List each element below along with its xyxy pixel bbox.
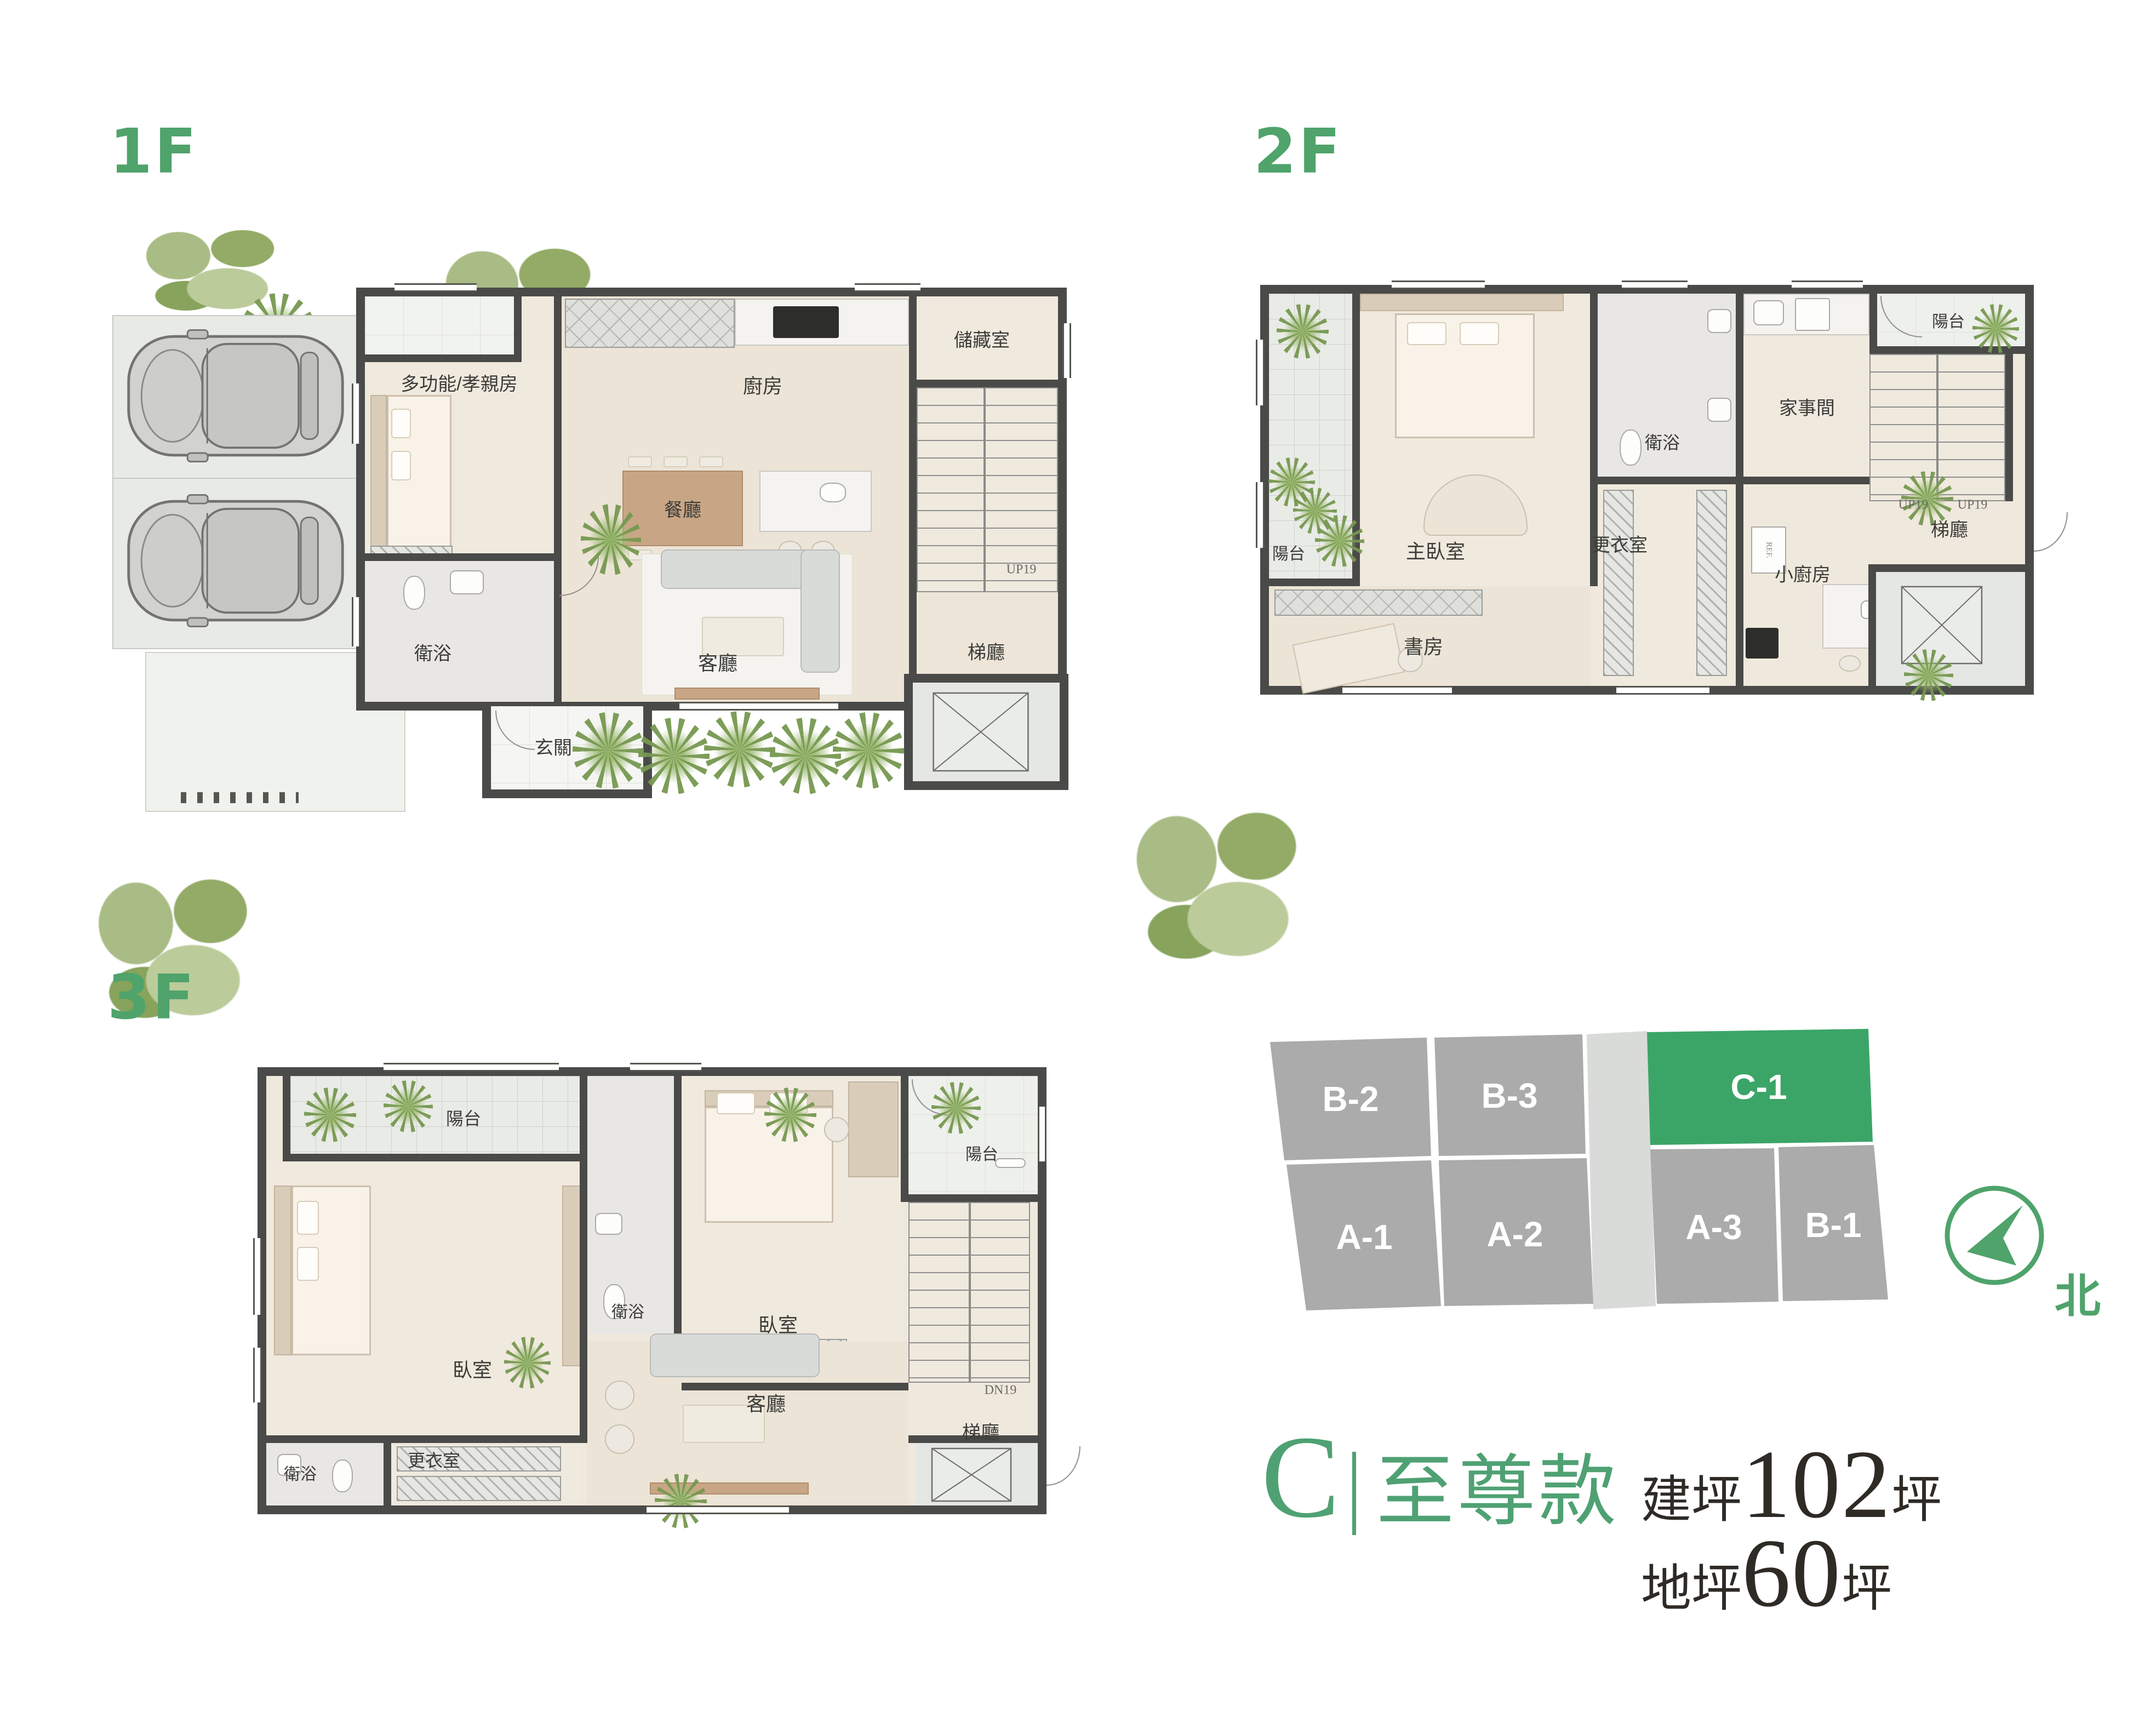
window [1622,280,1688,289]
toilet [1620,430,1642,466]
north-indicator: 北 [1940,1178,2104,1337]
land-area-value: 60 [1742,1524,1842,1622]
palm-icon [1972,304,2019,353]
room-label: 衛浴 [414,639,451,666]
window [1256,340,1265,405]
bed-headboard [1360,294,1564,311]
room-label: 書房 [1404,631,1443,660]
room-label: 衛浴 [611,1298,644,1322]
car-icon [123,491,348,631]
building-area-label: 建坪 [1641,1459,1742,1532]
garage-bay [113,479,361,648]
door-arc [2034,512,2068,552]
land-area-unit: 坪 [1842,1548,1892,1621]
floor-2f-label: 2F [1254,116,1342,187]
stairs-direction-label: UP19 [1898,498,1929,513]
room-label: 臥室 [453,1354,492,1383]
north-arrow-icon [1967,1205,2023,1266]
room-label: 主臥室 [1406,536,1465,564]
wall [580,1076,587,1435]
stairs-direction-label: DN19 [985,1383,1017,1398]
sink [1707,309,1731,333]
model-letter: C [1261,1418,1340,1536]
stair-divider [969,1202,971,1383]
fern-icon [1315,515,1364,567]
room-label: 陽台 [1272,540,1305,564]
window [352,597,361,646]
chair [664,456,688,467]
window [1342,686,1452,695]
building-area-unit: 坪 [1891,1459,1942,1532]
window [352,383,361,444]
bookshelf [1274,589,1483,616]
pillow [297,1247,319,1281]
lounge-chair [605,1381,634,1410]
sink [595,1213,622,1235]
window [1792,280,1863,289]
terrace-1f [365,296,514,354]
model-name: 至尊款 [1376,1453,1620,1531]
fern-icon [581,504,641,575]
wall [266,1435,587,1443]
floor-3f-label: 3F [107,962,196,1033]
elevator-wing-1f [904,674,1068,790]
room-label: 臥室 [758,1309,798,1338]
wall [1060,674,1068,790]
window [1392,280,1485,289]
room-label: 餐廳 [664,495,701,522]
site-unit-label: A-1 [1336,1217,1392,1257]
room-label: 儲藏室 [954,325,1010,352]
wall [904,674,1068,683]
wall [1736,294,1743,477]
site-road [1587,1031,1656,1309]
wall [365,553,562,561]
fern-icon [504,1337,551,1389]
fern-icon [1904,649,1953,701]
wall [1868,564,1876,686]
pillow [717,1092,755,1114]
room-label: 更衣室 [1592,530,1648,557]
chair [699,456,723,467]
lounge-chair [605,1424,634,1454]
bed-headboard [370,395,387,548]
site-unit-label: C-1 [1730,1067,1787,1107]
door-arc [1046,1446,1080,1486]
window [855,283,920,292]
room-label: 家事間 [1779,393,1835,420]
walkway-dashes [181,792,299,803]
site-unit-label: B-2 [1322,1079,1379,1119]
wall [682,1383,908,1390]
site-unit-label: B-1 [1805,1205,1861,1245]
room-label: 陽台 [1932,308,1965,332]
garage-bay [113,316,361,479]
window [1256,482,1265,548]
fridge-label: REF. [1764,542,1774,558]
tree-icon [1101,778,1337,992]
fern-icon [770,718,841,794]
room-label: 梯廳 [1931,515,1968,542]
room-label: 陽台 [965,1141,998,1165]
site-unit-label: A-2 [1486,1215,1543,1254]
stove [1746,628,1778,659]
elevator-shaft-icon [930,1447,1013,1502]
room-label: 廚房 [743,370,782,399]
window [1038,1107,1046,1161]
window [1616,686,1709,695]
land-area-label: 地坪 [1641,1548,1742,1621]
window [647,1505,789,1514]
fern-icon [655,1474,707,1528]
room-label: 衛浴 [1645,429,1680,454]
room-label: 玄關 [535,733,572,760]
stairs-direction-label: UP19 [1006,563,1037,577]
wall [2005,354,2013,501]
sofa [650,1333,820,1377]
wall [917,380,1058,387]
fern-icon [638,718,710,794]
land-area-line: 地坪 60 坪 [1641,1524,1892,1622]
wall [908,1194,1038,1202]
wall [901,1076,908,1202]
site-unit-label: A-3 [1685,1207,1742,1247]
palm-icon [931,1082,981,1134]
stairs-1f [917,387,1058,592]
wall [1868,564,2025,572]
kitchen-cabinets [565,299,735,348]
room-label: 客廳 [746,1388,786,1417]
fern-icon [304,1087,356,1142]
wall [1743,477,1869,484]
elevator-shaft-icon [931,691,1030,772]
wall [1869,294,1877,354]
garage-pad [112,315,362,649]
fern-icon [573,712,644,789]
wall [283,1076,290,1161]
pillow [1460,322,1499,345]
wardrobe [1603,490,1634,676]
site-unit-label: B-3 [1481,1076,1537,1115]
stairs-direction-label: UP19 [1958,498,1988,513]
wall [904,781,1068,790]
desk [848,1081,899,1177]
wall [482,789,652,798]
palm-icon [384,1080,433,1132]
bed-headboard [274,1186,291,1355]
fern-icon [1277,304,1329,359]
fern-icon [833,712,904,789]
wall [365,354,522,362]
room-label: 更衣室 [408,1447,460,1472]
window [679,702,838,711]
utility-sink [1753,300,1784,325]
car-icon [123,326,348,466]
sink [1707,398,1731,422]
bath-top-3f [587,1076,674,1333]
room-label: 陽台 [446,1105,481,1130]
bench [995,1158,1026,1168]
pillow [1407,322,1446,345]
floorplan-3f [258,1067,1046,1514]
room-label: 客廳 [698,648,737,676]
island-sink [820,483,846,502]
wall [384,1443,391,1505]
wall [1269,579,1360,586]
window [1062,323,1071,378]
chair [628,456,652,467]
toilet [332,1459,353,1492]
chair [824,1117,849,1142]
pillow [391,451,411,480]
room-label: 梯廳 [962,1418,999,1445]
room-label: 梯廳 [968,638,1005,665]
tv-console [674,688,820,700]
wall [514,296,522,354]
window [253,1348,262,1402]
washer [1795,298,1830,331]
wall [482,706,491,798]
north-label: 北 [2055,1270,2101,1322]
floor-1f-label: 1F [110,116,198,187]
window [384,1063,559,1072]
sink [450,570,484,594]
room-label: 衛浴 [284,1461,317,1485]
wardrobe [397,1476,561,1501]
window [394,283,477,292]
fern-icon [764,1087,816,1142]
stove [773,306,839,338]
wall [1736,484,1743,686]
room-label: 多功能/孝親房 [401,369,517,396]
toilet [403,576,425,610]
pillow [391,409,411,438]
wall [909,296,917,702]
title-divider [1352,1452,1356,1535]
sofa [800,549,840,673]
stair-divider [983,387,986,592]
stool [1839,655,1861,672]
window [630,1063,701,1072]
kitchen-island [759,471,872,532]
wall [904,674,913,790]
room-label: 小廚房 [1775,560,1831,587]
site-plan: B-2 B-3 C-1 A-1 A-2 A-3 B-1 [1260,1029,1890,1319]
fern-icon [704,711,775,788]
wall [674,1076,682,1333]
pillow [297,1201,319,1235]
wall [554,296,562,702]
window [253,1238,262,1315]
wardrobe [1696,490,1727,676]
wall [1598,477,1743,484]
floorplan-sheet: 1F [0,0,2156,1712]
